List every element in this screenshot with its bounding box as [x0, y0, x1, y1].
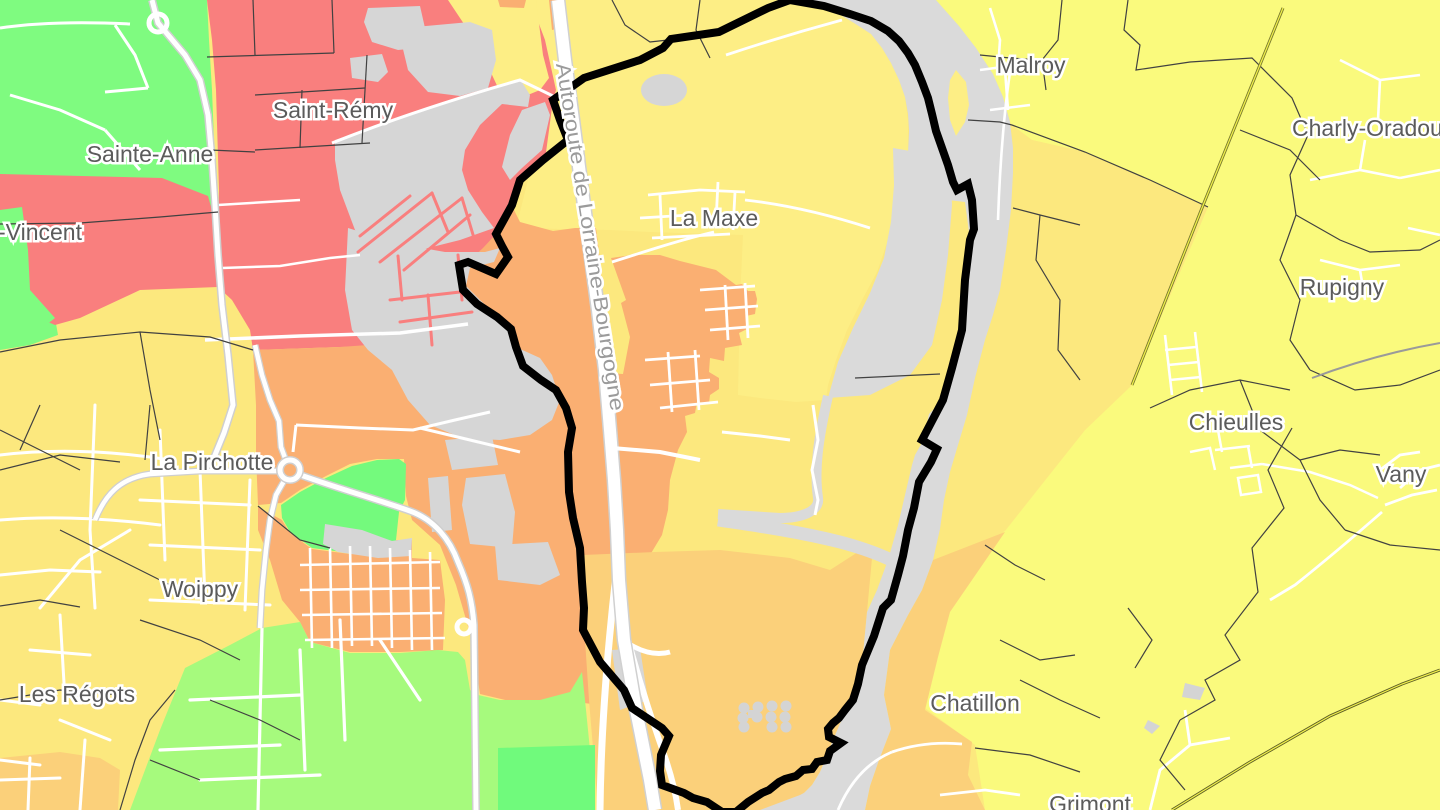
- svg-text:Malroy: Malroy: [996, 52, 1066, 78]
- svg-text:Woippy: Woippy: [162, 576, 239, 602]
- svg-text:-Vincent: -Vincent: [0, 219, 83, 245]
- svg-text:Saint-Rémy: Saint-Rémy: [273, 97, 394, 123]
- svg-text:Chieulles: Chieulles: [1189, 409, 1284, 435]
- svg-text:Les Régots: Les Régots: [19, 681, 135, 707]
- svg-text:Charly-Oradour: Charly-Oradour: [1292, 115, 1440, 141]
- svg-text:Chatillon: Chatillon: [930, 690, 1020, 716]
- svg-text:Grimont: Grimont: [1049, 791, 1131, 810]
- svg-text:La Pirchotte: La Pirchotte: [151, 449, 274, 475]
- svg-text:Sainte-Anne: Sainte-Anne: [87, 141, 214, 167]
- svg-text:Rupigny: Rupigny: [1300, 274, 1385, 300]
- svg-text:Vany: Vany: [1376, 461, 1427, 487]
- svg-text:La Maxe: La Maxe: [670, 205, 758, 231]
